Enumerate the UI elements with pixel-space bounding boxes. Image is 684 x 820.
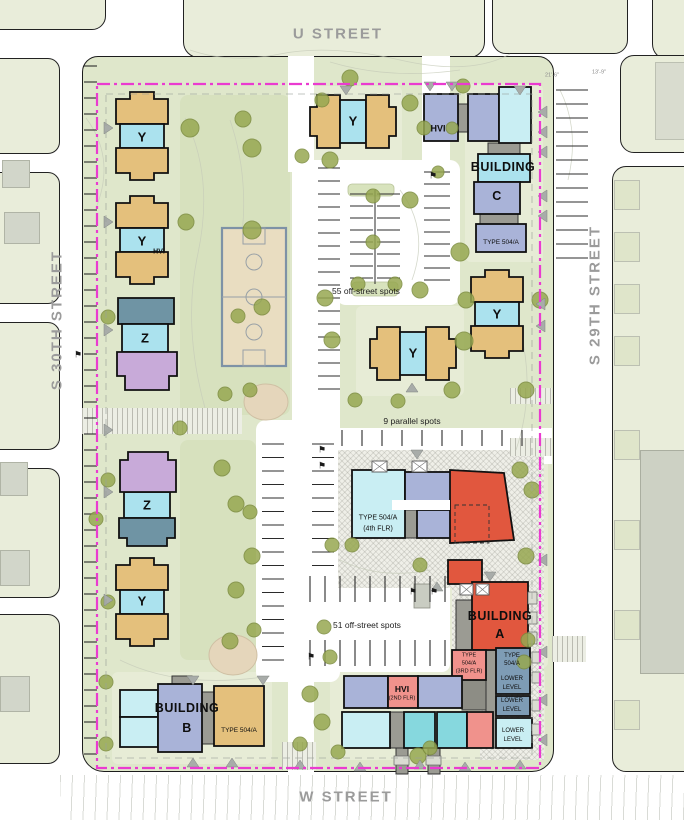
label-building-b: BUILDING [155,702,219,715]
unit-label-y: Y [493,308,502,321]
building-section [437,712,467,748]
dumpster-icon: ⚑ [307,652,315,663]
label-type504-3rd: TYPE [462,653,476,659]
dimension-label: 13'-9" [592,70,606,76]
building-section [499,87,531,143]
label-building-c: BUILDING [471,161,535,174]
building-section [344,676,388,708]
label-type504-3rd: 504/A [462,661,476,667]
label-type504-b: TYPE 504/A [221,728,257,735]
label-hvi-2nd: HVI [395,685,409,694]
label-type504-4th: (4th FLR) [363,526,393,533]
dumpster-icon: ⚑ [409,587,417,598]
building-section [120,452,176,492]
building-section [158,684,202,752]
unit-label-y: Y [409,347,418,360]
street-label-w: W STREET [299,790,393,805]
label-hvi-2nd: (2ND FLR) [389,696,416,702]
basketball-court [222,228,286,366]
building-section [118,298,174,324]
building-section [120,690,158,717]
unit-label-z: Z [141,332,149,345]
unit-label-y: Y [349,115,358,128]
unit-label-hvi: HVI [153,249,165,256]
label-lower-level-2: LEVEL [503,707,522,713]
building-section [450,470,514,543]
building-section [468,94,499,141]
building-section [214,686,264,746]
label-type504-slate: 504/A [504,661,520,667]
label-lower-level-2: LOWER [501,698,523,704]
unit-label-y: Y [138,595,147,608]
dumpster-icon: ⚑ [318,445,326,456]
dimension-label: 21'-6" [545,73,559,79]
building-section [418,676,462,708]
dumpster-icon: ⚑ [74,350,82,361]
label-lower-level-1: LOWER [501,676,523,682]
label-type504-c: TYPE 504/A [483,240,519,247]
building-section [467,712,493,748]
street-label-u: U STREET [293,27,383,42]
unit-label-hvi: HVI [430,125,445,134]
unit-label-z: Z [143,499,151,512]
label-lower-level-1: LEVEL [503,685,522,691]
label-type504-4th: TYPE 504/A [359,515,398,522]
dumpster-icon: ⚑ [430,587,438,598]
dumpster-icon: ⚑ [429,171,437,182]
parking-count-center: 55 off-street spots [332,287,400,296]
building-section [448,560,482,584]
label-type504-slate: TYPE [504,653,520,659]
building-section [342,712,390,748]
plan-drawing-layer [0,0,684,820]
label-lower-level-3: LEVEL [504,737,523,743]
label-building-c: C [492,190,502,203]
label-type504-3rd: (3RD FLR) [456,669,483,675]
building-section [120,717,158,747]
building-section [117,352,177,390]
site-plan-canvas: ⚑ ⚑ ⚑ ⚑ ⚑ ⚑ ⚑ U STREET W STREET S 30TH S… [0,0,684,820]
label-building-a: BUILDING [468,610,532,623]
unit-label-y: Y [138,235,147,248]
street-label-s30: S 30TH STREET [50,250,65,390]
building-section [405,472,451,502]
parking-count-south: 51 off-street spots [333,621,401,630]
building-section [119,518,175,546]
label-building-a: A [495,628,505,641]
unit-label-y: Y [138,131,147,144]
label-lower-level-3: LOWER [502,728,524,734]
parking-count-parallel: 9 parallel spots [383,417,440,426]
dumpster-icon: ⚑ [318,461,326,472]
label-building-b: B [182,722,192,735]
street-label-s29: S 29TH STREET [588,225,603,365]
